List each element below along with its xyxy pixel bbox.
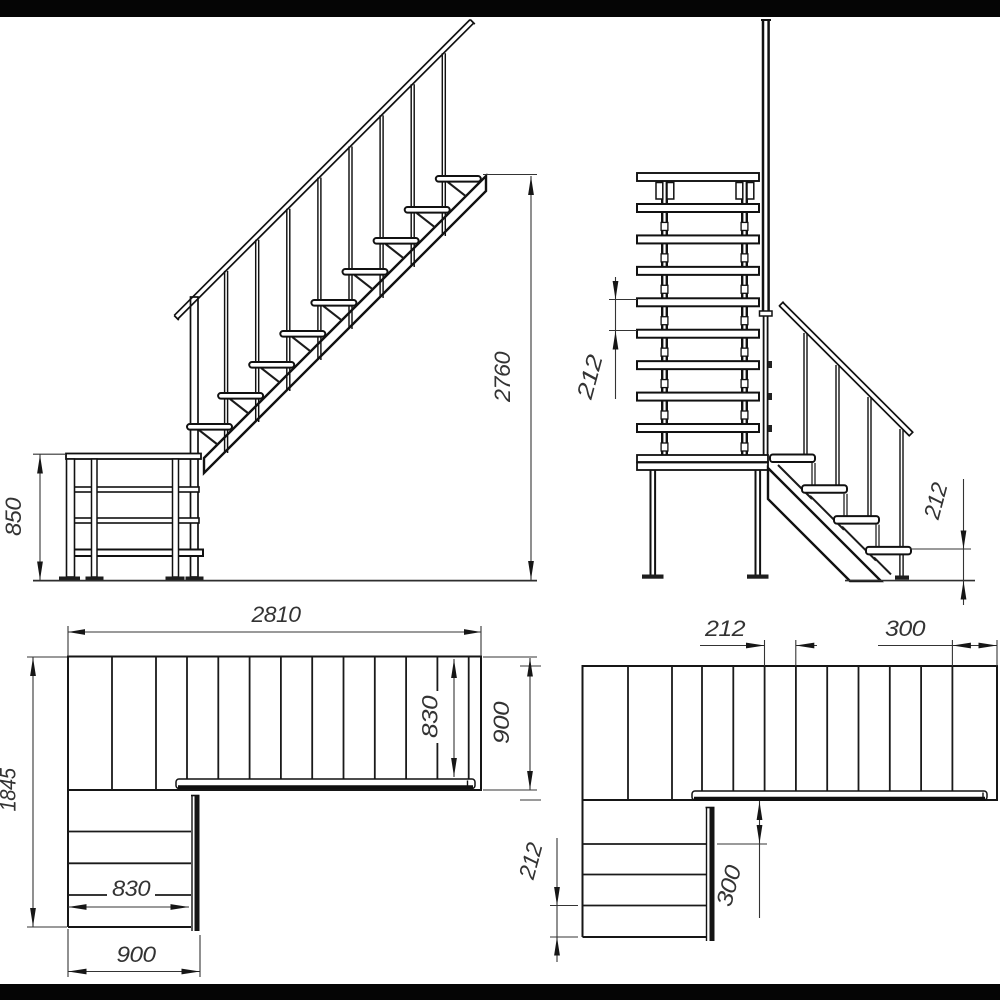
svg-text:2810: 2810 <box>250 602 301 627</box>
svg-text:212: 212 <box>704 616 746 641</box>
svg-text:850: 850 <box>1 497 26 536</box>
svg-text:900: 900 <box>117 942 157 967</box>
svg-text:1845: 1845 <box>0 768 21 812</box>
svg-text:830: 830 <box>112 876 151 901</box>
svg-text:900: 900 <box>489 701 514 744</box>
svg-text:300: 300 <box>885 616 926 641</box>
svg-text:830: 830 <box>418 695 443 738</box>
svg-text:2760: 2760 <box>490 351 515 403</box>
